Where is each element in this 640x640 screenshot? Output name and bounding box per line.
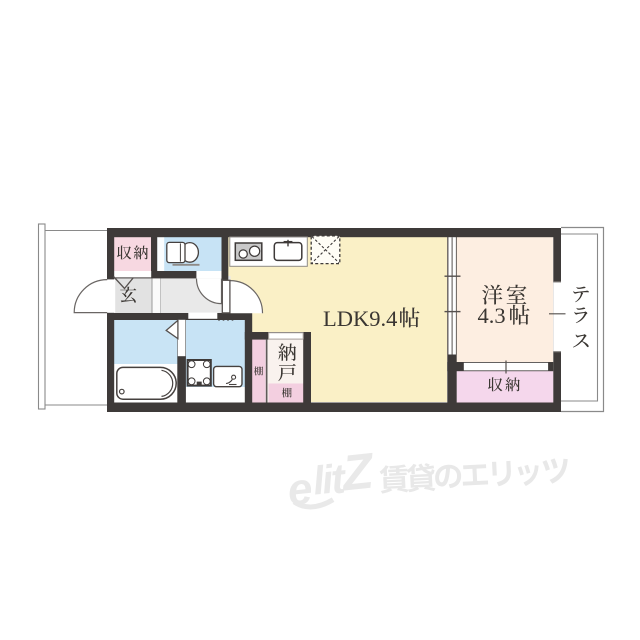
svg-text:4.3: 4.3 bbox=[478, 303, 506, 328]
svg-text:LDK9.4: LDK9.4 bbox=[323, 306, 397, 331]
